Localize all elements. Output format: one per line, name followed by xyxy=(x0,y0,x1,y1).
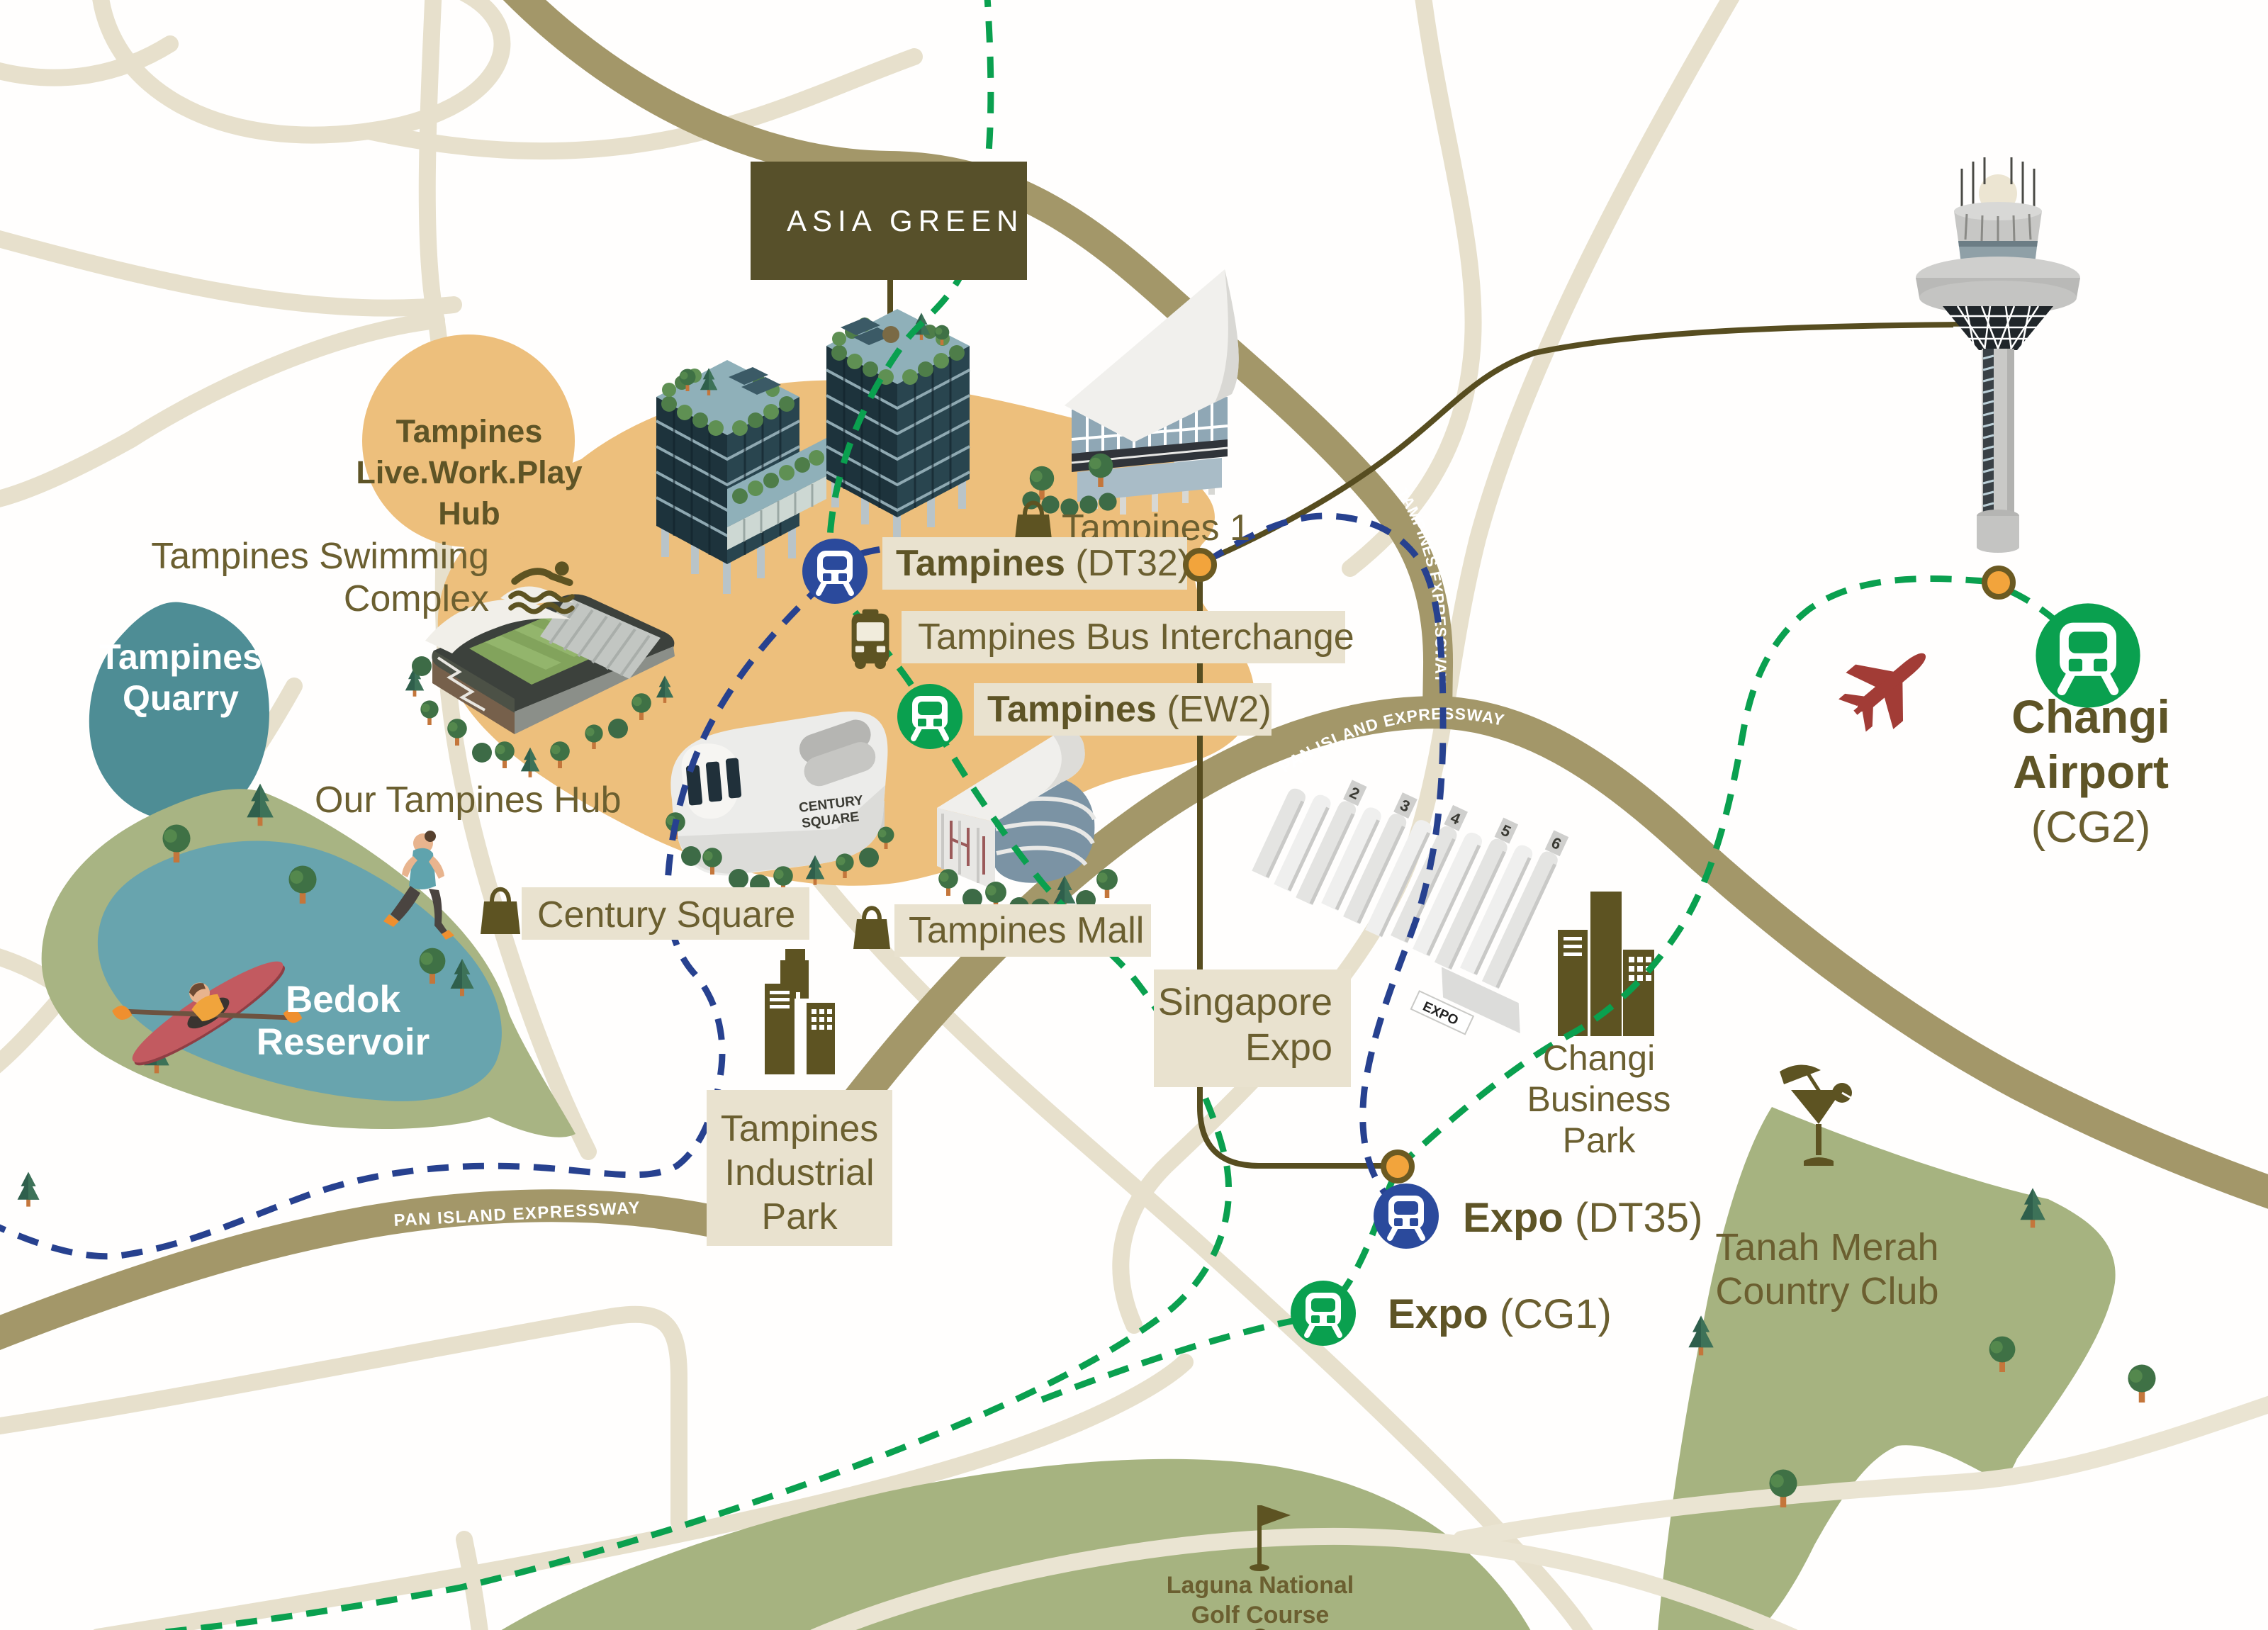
svg-text:Quarry: Quarry xyxy=(123,678,239,718)
svg-text:Singapore: Singapore xyxy=(1158,981,1332,1023)
svg-text:Industrial: Industrial xyxy=(725,1152,875,1193)
svg-text:Expo: Expo xyxy=(1245,1026,1332,1069)
svg-text:Reservoir: Reservoir xyxy=(257,1021,430,1063)
svg-text:Country Club: Country Club xyxy=(1715,1270,1938,1313)
svg-text:Airport: Airport xyxy=(2013,746,2169,798)
svg-text:(CG2): (CG2) xyxy=(2031,803,2151,852)
svg-text:Our Tampines Hub: Our Tampines Hub xyxy=(315,780,622,821)
svg-text:Hub: Hub xyxy=(438,495,500,532)
svg-text:Park: Park xyxy=(1563,1120,1637,1160)
svg-text:Tampines Bus Interchange: Tampines Bus Interchange xyxy=(918,617,1354,658)
svg-text:Tampines (DT32): Tampines (DT32) xyxy=(896,543,1190,584)
svg-text:Bedok: Bedok xyxy=(286,979,401,1021)
svg-text:Tampines (EW2): Tampines (EW2) xyxy=(987,689,1271,730)
svg-text:Tampines: Tampines xyxy=(99,637,262,677)
svg-text:Tampines Swimming: Tampines Swimming xyxy=(151,536,489,577)
svg-text:Business: Business xyxy=(1527,1079,1671,1119)
svg-text:Golf Course: Golf Course xyxy=(1191,1602,1330,1629)
svg-text:Complex: Complex xyxy=(344,578,489,619)
svg-text:Expo (DT35): Expo (DT35) xyxy=(1463,1195,1702,1241)
svg-text:Tampines: Tampines xyxy=(721,1108,879,1150)
svg-text:Park: Park xyxy=(762,1196,838,1237)
svg-text:Live.Work.Play: Live.Work.Play xyxy=(356,454,582,490)
svg-text:Tampines Mall: Tampines Mall xyxy=(909,910,1144,951)
svg-text:Expo (CG1): Expo (CG1) xyxy=(1388,1291,1612,1337)
svg-text:Laguna National: Laguna National xyxy=(1167,1572,1354,1599)
svg-text:Tampines: Tampines xyxy=(396,413,543,449)
svg-text:Changi: Changi xyxy=(1543,1038,1655,1078)
svg-text:Tanah Merah: Tanah Merah xyxy=(1715,1226,1938,1269)
svg-text:ASIA GREEN: ASIA GREEN xyxy=(787,204,1023,237)
svg-text:Century Square: Century Square xyxy=(537,894,795,935)
